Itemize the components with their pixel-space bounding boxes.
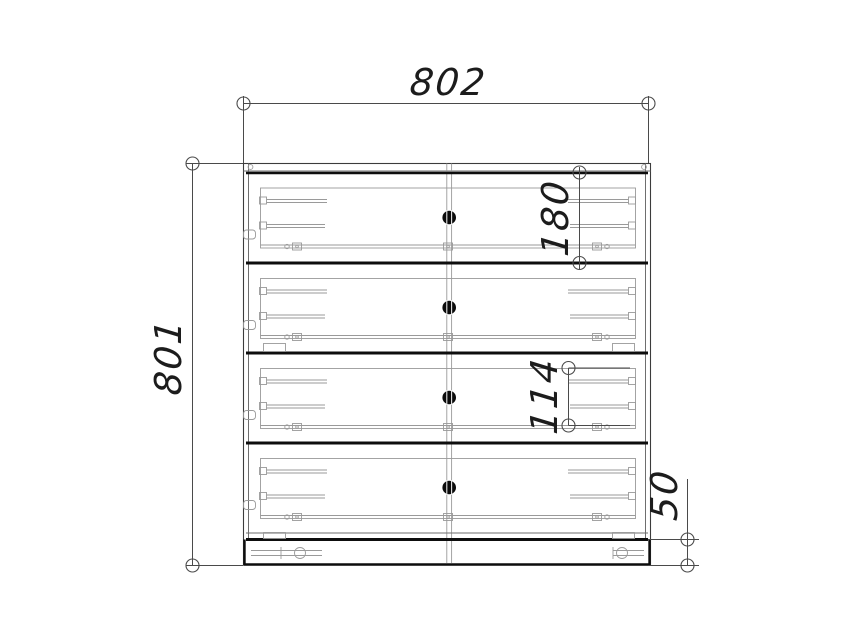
- dim-overall-height-label: 801: [147, 316, 190, 397]
- knob-icon: [442, 480, 456, 495]
- dim-plinth-height-label: 50: [643, 467, 686, 523]
- dim-drawer-box-height-label: 114: [523, 355, 566, 436]
- chest-of-drawers-drawing: 802 801 180 114 50: [0, 0, 856, 642]
- dim-drawer-box-height: 114: [523, 355, 630, 436]
- knob-icon: [442, 390, 456, 405]
- dim-overall-width: 802: [237, 61, 655, 163]
- dim-overall-width-label: 802: [408, 61, 489, 104]
- dim-drawer-front-height: 180: [534, 166, 586, 270]
- dim-plinth-height: 50: [643, 467, 699, 572]
- knob-icon: [442, 300, 456, 315]
- left-foot-icon: [251, 547, 322, 559]
- cabinet-body: [244, 164, 651, 566]
- dim-overall-height: 801: [147, 157, 243, 572]
- technical-drawing-canvas: 802 801 180 114 50: [0, 0, 856, 642]
- dim-drawer-front-height-label: 180: [534, 177, 577, 258]
- knob-icon: [442, 210, 456, 225]
- right-foot-icon: [613, 547, 644, 559]
